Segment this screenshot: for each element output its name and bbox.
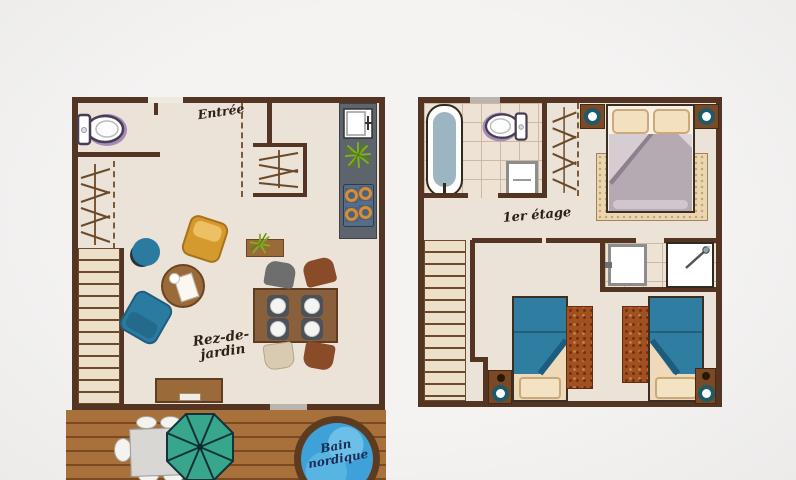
washbasin-cabinet: [608, 244, 647, 286]
shower-icon: [666, 242, 714, 288]
footstool: [132, 238, 160, 266]
single-bed: [512, 296, 568, 402]
double-bed: [606, 104, 695, 213]
closet-wall: [253, 143, 307, 147]
knob-icon: [702, 372, 710, 380]
lamp-icon: [492, 385, 509, 402]
ground-floor-label: Rez-de- jardin: [171, 324, 274, 366]
blanket: [514, 298, 566, 374]
wc-wall: [78, 152, 160, 157]
plate-icon: [267, 295, 289, 317]
wardrobe-hangers-icon: [79, 162, 112, 247]
interior-wall: [470, 240, 475, 362]
bathtub-icon: [426, 104, 463, 197]
toilet-icon: [476, 109, 532, 145]
first-floor-plan: 1er étage: [418, 97, 722, 407]
cup-icon: [169, 273, 180, 284]
terrace-deck: Bain nordique: [66, 410, 386, 480]
parasol-icon: [163, 410, 237, 480]
bedside-table: [580, 104, 605, 129]
toilet-icon: [76, 110, 130, 150]
sideboard: [155, 378, 223, 403]
pillow: [655, 377, 697, 399]
pillow: [653, 109, 690, 134]
hot-tub: Bain nordique: [294, 416, 380, 480]
plant-icon: [248, 232, 272, 256]
interior-wall: [472, 238, 542, 243]
entry-closet-hangers-icon: [256, 148, 301, 190]
blanket: [650, 298, 702, 374]
dining-chair: [263, 260, 297, 290]
closet-wall: [253, 193, 307, 197]
bedside-table: [695, 368, 716, 404]
door-leaf: [154, 103, 158, 115]
bathtub-water: [433, 112, 456, 187]
rug: [566, 306, 593, 389]
bathroom-wall: [498, 193, 542, 198]
staircase: [78, 248, 120, 404]
pillow: [519, 377, 561, 399]
plate-icon: [301, 295, 323, 317]
coffee-table: [161, 264, 205, 308]
kitchen-sink-icon: [343, 108, 373, 139]
floorplan-illustration: Entrée Rez-de- jardin: [0, 0, 796, 480]
plant-icon: [344, 141, 372, 169]
dashed-partition: [577, 103, 579, 196]
first-floor-label: 1er étage: [482, 204, 593, 227]
shower-room-wall: [600, 238, 636, 243]
staircase: [424, 240, 466, 401]
dining-chair: [302, 341, 336, 372]
lamp-icon: [698, 385, 715, 402]
ground-floor-plan: Entrée Rez-de- jardin: [72, 97, 385, 410]
plate-icon: [301, 318, 323, 340]
dashed-partition: [241, 103, 243, 197]
knob-icon: [497, 374, 505, 382]
pillow: [612, 109, 649, 134]
hob-icon: [343, 184, 374, 227]
dining-chair: [301, 256, 337, 289]
rug: [622, 306, 649, 383]
bedside-table: [488, 370, 512, 404]
interior-wall: [546, 238, 605, 243]
lamp-icon: [698, 108, 715, 125]
outdoor-chair: [136, 416, 157, 429]
bedside-table: [694, 104, 719, 129]
lamp-icon: [584, 108, 601, 125]
dashed-partition: [113, 161, 115, 249]
wardrobe-hangers-icon: [551, 105, 578, 195]
bathroom-wall: [542, 103, 547, 198]
entry-label: Entrée: [171, 98, 272, 125]
armchair: [179, 213, 230, 265]
bathroom-wall: [424, 193, 468, 198]
closet-wall: [303, 143, 307, 197]
